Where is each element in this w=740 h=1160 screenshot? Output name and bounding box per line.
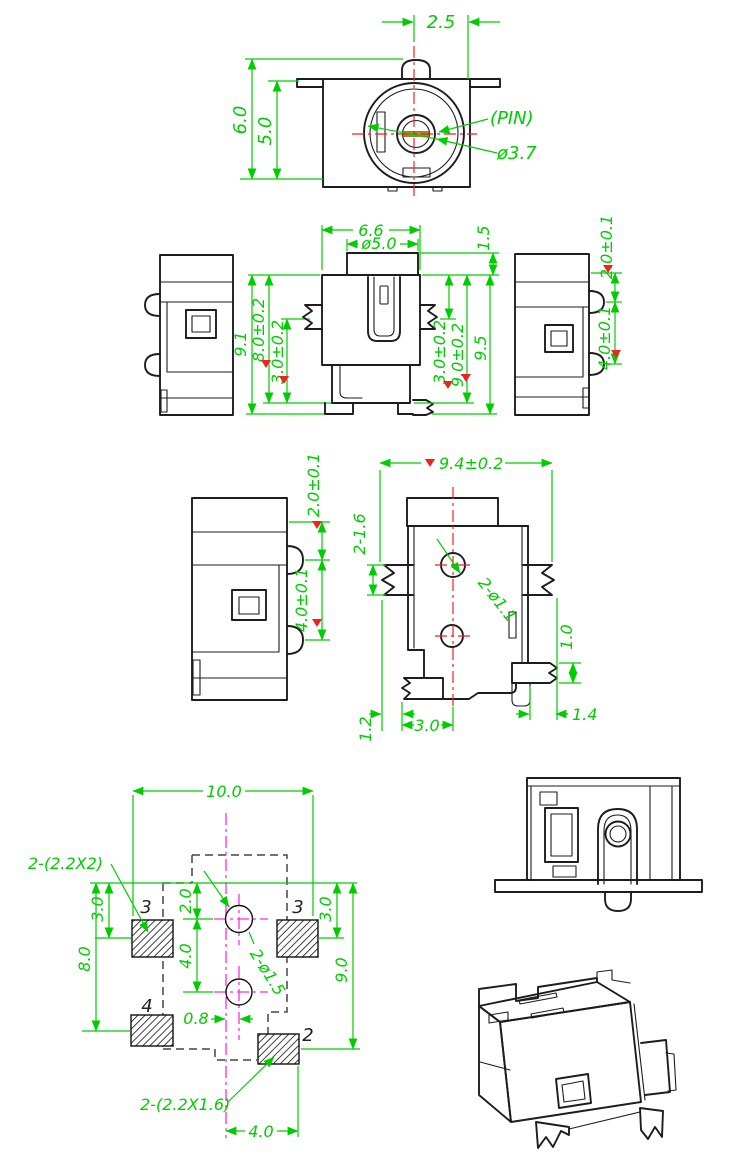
dim-label-barrel-diameter: ø5.0 bbox=[360, 234, 396, 253]
dim-label-pcb-width: 10.0 bbox=[206, 782, 242, 801]
pin-number-4: 4 bbox=[141, 996, 152, 1017]
dim-label-height-inner: 5.0 bbox=[255, 117, 276, 146]
rear-view bbox=[495, 778, 702, 911]
dim-label-hole-top: 2.0 bbox=[176, 888, 195, 913]
dim-label-bottom-width: 9.4±0.2 bbox=[439, 454, 503, 473]
dim-label-front-flange: 3.0±0.2 bbox=[430, 320, 449, 384]
dim-label-lug-top: 2.0±0.1 bbox=[304, 453, 323, 517]
dim-label-center-offset: 3.0 bbox=[414, 716, 439, 735]
label-pads-lower: 2-(2.2X1.6) bbox=[140, 1095, 230, 1114]
dim-label-side-body: 8.0±0.2 bbox=[249, 298, 268, 362]
dim-label-cap-height: 1.5 bbox=[474, 225, 493, 250]
isometric-view bbox=[479, 970, 676, 1148]
datum-triangle bbox=[425, 459, 435, 467]
dim-label-hole-offset: 0.8 bbox=[183, 1009, 208, 1028]
dim-label-pin-offset: 2.5 bbox=[427, 12, 456, 33]
dim-label-foot-offset: 1.2 bbox=[356, 716, 375, 741]
dim-label-hole-pitch: 4.0 bbox=[176, 943, 195, 968]
mount-foot bbox=[640, 1108, 663, 1139]
side-view-enlarged: 2.0±0.1 4.0±0.1 bbox=[192, 453, 330, 700]
dim-label-front-overall: 9.5 bbox=[471, 335, 490, 360]
dim-label-terminal-holes: 2-ø1.1 bbox=[474, 574, 520, 626]
front-view: 6.6 ø5.0 1.5 3.0±0.2 9.0±0.2 9.5 bbox=[303, 221, 499, 415]
label-pads-upper: 2-(2.2X2) bbox=[28, 854, 103, 873]
smd-pad-3-right bbox=[277, 920, 318, 957]
pcb-footprint: 10.0 3.0 8.0 2.0 4.0 0.8 3.0 9.0 4.0 2-(… bbox=[28, 782, 360, 1141]
dim-label-foot-width: 1.4 bbox=[572, 705, 597, 724]
pin-number-3-left: 3 bbox=[140, 897, 151, 918]
dim-label-right-span: 9.0 bbox=[332, 957, 351, 982]
dim-label-left-top: 3.0 bbox=[88, 896, 107, 921]
center-pin-tail bbox=[605, 892, 631, 911]
engineering-drawing: 2.5 6.0 5.0 (PIN) ø3.7 9.1 8.0±0.2 bbox=[0, 0, 740, 1160]
dim-label-flange-width: 2-1.6 bbox=[350, 513, 369, 554]
datum-triangle bbox=[312, 619, 322, 627]
dim-label-foot-height: 1.0 bbox=[557, 624, 576, 649]
datum-triangle bbox=[312, 521, 322, 529]
dim-label-side-flange: 3.0±0.2 bbox=[268, 320, 287, 384]
pin-number-3-right: 3 bbox=[292, 897, 303, 918]
smd-pad-2 bbox=[258, 1034, 299, 1064]
dim-label-side-overall: 9.1 bbox=[231, 331, 250, 356]
dim-label-pin-diameter: ø3.7 bbox=[496, 143, 537, 164]
smd-pad-4 bbox=[131, 1015, 173, 1046]
dim-label-right-top: 3.0 bbox=[316, 896, 335, 921]
dim-label-lug-pitch: 4.0±0.1 bbox=[292, 568, 311, 632]
top-view: 2.5 6.0 5.0 (PIN) ø3.7 bbox=[230, 12, 537, 196]
mount-foot bbox=[536, 1122, 569, 1148]
smd-pad-3-left bbox=[132, 920, 173, 957]
dim-label-pad-offset: 4.0 bbox=[248, 1122, 273, 1141]
solder-lug bbox=[145, 294, 160, 316]
drawing-sheet: 2.5 6.0 5.0 (PIN) ø3.7 9.1 8.0±0.2 bbox=[0, 0, 740, 1160]
pin-bore bbox=[606, 822, 631, 847]
side-view-right: 2.0±0.1 4.0±0.1 bbox=[515, 215, 622, 415]
mount-foot bbox=[512, 663, 557, 683]
pin-callout: (PIN) bbox=[490, 108, 534, 129]
pin-number-2: 2 bbox=[302, 1025, 313, 1046]
dim-label-height-outer: 6.0 bbox=[230, 106, 251, 135]
center-pin bbox=[380, 286, 388, 304]
shield-flange bbox=[303, 305, 322, 329]
side-view-left: 9.1 8.0±0.2 3.0±0.2 bbox=[145, 255, 332, 415]
bottom-view: 9.4±0.2 2-1.6 1.0 1.4 3.0 1.2 2-ø1.1 bbox=[350, 454, 597, 742]
solder-lug bbox=[145, 354, 160, 376]
mount-foot bbox=[402, 678, 443, 699]
dim-label-left-span: 8.0 bbox=[75, 946, 94, 971]
dim-label-lug-pitch: 4.0±0.1 bbox=[595, 306, 614, 370]
